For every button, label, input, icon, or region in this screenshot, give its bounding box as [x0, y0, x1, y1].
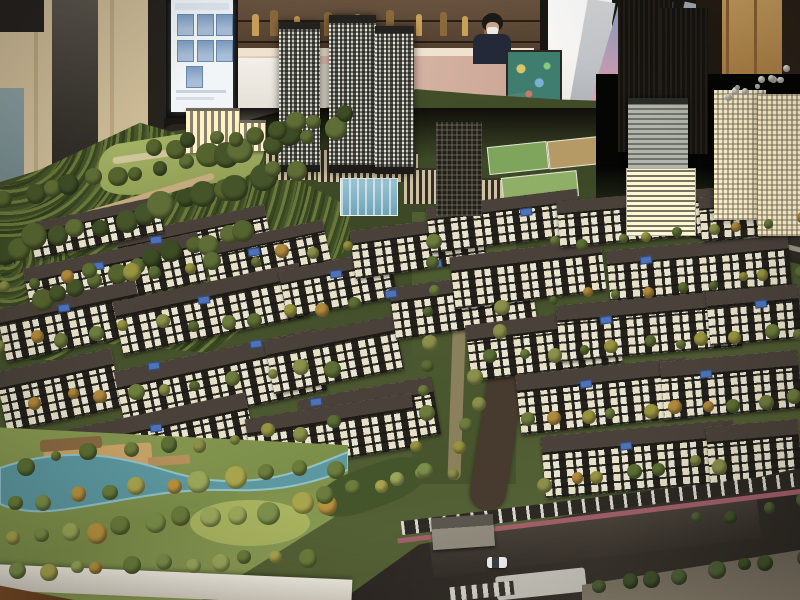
- tree-puff: [265, 161, 281, 177]
- tree-puff: [68, 388, 79, 399]
- tree-puff: [676, 340, 686, 350]
- tree-puff: [142, 248, 161, 267]
- roof-plate: [755, 299, 768, 309]
- tree-puff: [418, 385, 429, 396]
- tree-puff: [787, 389, 800, 404]
- trophy: [270, 10, 278, 36]
- tree-puff: [147, 191, 175, 219]
- tree-puff: [187, 471, 209, 493]
- tree-puff: [643, 571, 659, 587]
- roof-plate: [330, 269, 343, 279]
- tree-puff: [422, 335, 438, 351]
- office-tower-dark: [436, 122, 482, 216]
- flower-puff: [777, 77, 784, 84]
- tree-puff: [203, 252, 221, 270]
- tree-puff: [448, 469, 459, 480]
- tree-puff: [92, 220, 109, 237]
- tree-puff: [40, 564, 58, 582]
- residential-tower: [279, 22, 320, 172]
- roof-plate: [520, 207, 533, 217]
- tree-puff: [268, 121, 287, 140]
- roof-plate: [150, 235, 163, 245]
- tree-puff: [550, 236, 560, 246]
- tree-puff: [293, 359, 309, 375]
- tree-puff: [117, 320, 128, 331]
- tree-puff: [493, 324, 507, 338]
- tree-puff: [417, 463, 433, 479]
- kiosk-thumbnail: [216, 14, 233, 36]
- tree-puff: [592, 580, 606, 594]
- tree-puff: [79, 443, 96, 460]
- tree-puff: [672, 227, 682, 237]
- tree-puff: [759, 395, 774, 410]
- tree-puff: [644, 404, 659, 419]
- tree-puff: [795, 266, 800, 279]
- tree-puff: [284, 304, 297, 317]
- roof-plate: [198, 295, 211, 305]
- tree-puff: [110, 516, 130, 536]
- tree-puff: [8, 496, 22, 510]
- tree-puff: [54, 333, 69, 348]
- tree-puff: [71, 561, 84, 574]
- tree-puff: [108, 167, 128, 187]
- tree-puff: [225, 371, 240, 386]
- tree-puff: [222, 315, 237, 330]
- roof-plate: [580, 379, 593, 389]
- office-slab-lit: [626, 168, 696, 236]
- tree-puff: [410, 441, 421, 452]
- trophy: [440, 12, 447, 36]
- tree-puff: [623, 573, 639, 589]
- kiosk-thumbnail: [197, 40, 214, 62]
- tree-puff: [604, 340, 617, 353]
- roof-plate: [640, 255, 653, 265]
- tree-puff: [28, 397, 41, 410]
- tree-puff: [21, 223, 47, 249]
- roof-plate: [250, 339, 263, 349]
- trophy: [416, 14, 422, 36]
- tree-puff: [652, 463, 665, 476]
- kiosk-thumbnail: [186, 66, 203, 88]
- tree-puff: [210, 131, 223, 144]
- flower-puff: [742, 88, 749, 95]
- tree-puff: [709, 224, 720, 235]
- white-tower: [758, 94, 800, 236]
- tree-puff: [292, 492, 313, 513]
- tree-puff: [345, 480, 360, 495]
- tree-puff: [337, 105, 353, 121]
- tree-puff: [286, 112, 305, 131]
- tree-puff: [127, 477, 145, 495]
- tree-puff: [257, 502, 280, 525]
- tree-puff: [65, 219, 83, 237]
- tree-puff: [85, 168, 102, 185]
- tree-puff: [421, 360, 434, 373]
- tree-puff: [229, 132, 244, 147]
- kiosk-text-line: [176, 97, 214, 100]
- tree-puff: [645, 335, 656, 346]
- tree-puff: [9, 562, 26, 579]
- tree-puff: [467, 369, 483, 385]
- tree-puff: [316, 486, 334, 504]
- model-car: [487, 557, 507, 568]
- tree-puff: [160, 240, 182, 262]
- tree-puff: [212, 554, 230, 572]
- trophy: [252, 14, 259, 36]
- tree-puff: [17, 458, 35, 476]
- tree-puff: [426, 234, 442, 250]
- tree-puff: [576, 239, 588, 251]
- flower-puff: [755, 84, 760, 89]
- tree-puff: [671, 569, 687, 585]
- trophy: [462, 16, 468, 36]
- tree-puff: [153, 161, 167, 175]
- residential-tower: [375, 26, 414, 174]
- villa-block: [706, 284, 800, 346]
- kiosk-thumbnail: [177, 14, 194, 36]
- clubhouse-glass: [340, 178, 398, 216]
- tree-puff: [572, 472, 584, 484]
- tree-puff: [520, 349, 530, 359]
- tree-puff: [275, 244, 289, 258]
- tree-puff: [232, 220, 254, 242]
- roof-plate: [600, 315, 613, 325]
- ceiling-corner: [0, 0, 44, 32]
- tree-puff: [61, 270, 74, 283]
- flower-puff: [758, 76, 765, 83]
- tree-puff: [82, 263, 96, 277]
- roof-plate: [310, 397, 323, 407]
- tree-puff: [549, 296, 558, 305]
- sales-center-model-photo: [0, 0, 800, 600]
- tree-puff: [757, 269, 769, 281]
- tree-puff: [453, 441, 466, 454]
- tree-puff: [171, 506, 191, 526]
- tree-puff: [299, 549, 317, 567]
- tree-puff: [293, 427, 308, 442]
- tree-puff: [494, 300, 509, 315]
- roof-plate: [248, 247, 261, 257]
- roof-plate: [700, 369, 713, 379]
- tree-puff: [580, 345, 590, 355]
- tree-puff: [712, 459, 728, 475]
- roof-plate: [58, 303, 71, 313]
- tree-puff: [225, 466, 248, 489]
- residential-tower: [329, 15, 376, 173]
- kiosk-thumbnail: [177, 40, 194, 62]
- tree-puff: [189, 381, 200, 392]
- tree-puff: [307, 247, 319, 259]
- tree-puff: [221, 175, 247, 201]
- tree-puff: [102, 485, 117, 500]
- kiosk-screen-header: [175, 3, 229, 10]
- tree-puff: [315, 303, 329, 317]
- tree-puff: [87, 523, 108, 544]
- tree-puff: [190, 181, 216, 207]
- tree-puff: [161, 436, 177, 452]
- tree-puff: [156, 314, 170, 328]
- tree-puff: [167, 479, 182, 494]
- tree-puff: [261, 423, 275, 437]
- tree-puff: [590, 471, 603, 484]
- tree-puff: [292, 460, 307, 475]
- tree-puff: [193, 439, 206, 452]
- roof-plate: [620, 441, 633, 451]
- tree-puff: [124, 442, 139, 457]
- tree-puff: [668, 400, 682, 414]
- tree-puff: [643, 287, 654, 298]
- tree-puff: [611, 290, 619, 298]
- gatehouse: [431, 514, 495, 550]
- tree-puff: [793, 329, 800, 340]
- roof-plate: [148, 361, 161, 371]
- tree-puff: [93, 390, 106, 403]
- tree-puff: [123, 263, 141, 281]
- tree-puff: [708, 561, 726, 579]
- flower-puff: [725, 94, 732, 101]
- tree-puff: [764, 219, 773, 228]
- tree-puff: [426, 256, 439, 269]
- roof-plate: [385, 289, 398, 299]
- tree-puff: [619, 234, 628, 243]
- tree-puff: [548, 348, 563, 363]
- tree-puff: [375, 480, 388, 493]
- flower-puff: [783, 65, 790, 72]
- tree-puff: [128, 384, 145, 401]
- tree-puff: [49, 285, 65, 301]
- tree-puff: [419, 405, 435, 421]
- kiosk-text-line: [176, 90, 226, 93]
- tree-puff: [300, 130, 314, 144]
- tree-puff: [287, 161, 307, 181]
- tree-puff: [709, 281, 718, 290]
- kiosk-thumbnail: [197, 14, 214, 36]
- kiosk-thumbnail: [216, 40, 233, 62]
- tree-puff: [200, 507, 220, 527]
- tree-puff: [269, 551, 281, 563]
- tree-puff: [582, 410, 596, 424]
